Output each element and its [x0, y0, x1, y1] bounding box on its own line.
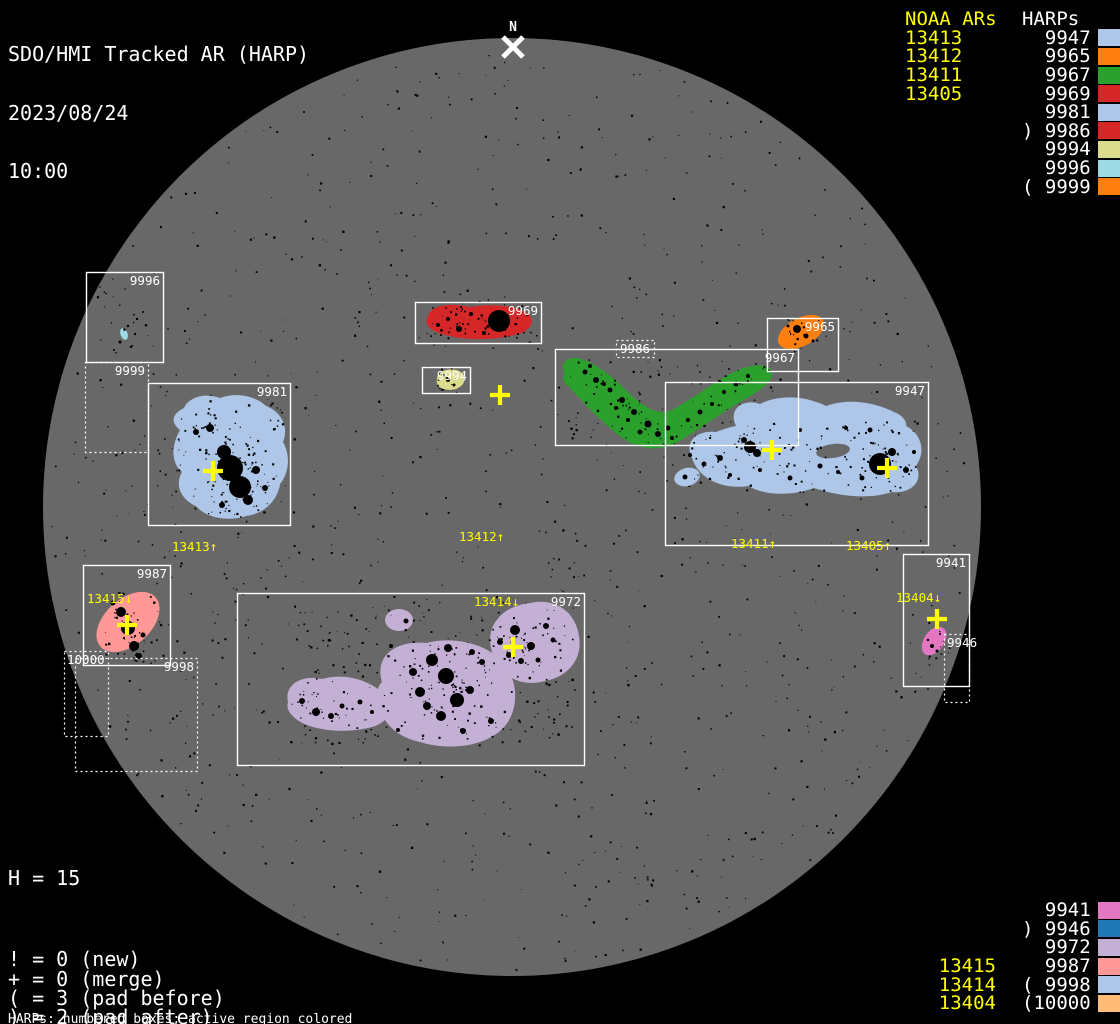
figure-title: SDO/HMI Tracked AR (HARP)	[8, 45, 309, 65]
harp-box-label-9965: 9965	[805, 319, 835, 334]
legend-row-9967: 13411 9967	[905, 66, 1120, 85]
noaa-label-13405: 13405↑	[846, 538, 891, 553]
legend-row-9969: 13405 9969	[905, 84, 1120, 103]
color-swatch-9967	[1098, 67, 1120, 84]
legend-top-rows: 13413 994713412 996513411 996713405 9969…	[905, 29, 1120, 196]
color-swatch-9998	[1098, 976, 1120, 993]
color-swatch-9965	[1098, 48, 1120, 65]
legend-bottom-rows: 9941) 9946 997213415 998713414( 99981340…	[905, 901, 1120, 1013]
noaa-label-13411: 13411↑	[731, 536, 776, 551]
legend-bottom: 9941) 9946 997213415 998713414( 99981340…	[905, 901, 1120, 1013]
footer-line-harps: HARPs: numbered boxes; active region col…	[8, 1014, 462, 1024]
color-swatch-9946	[1098, 920, 1120, 937]
harp-box-label-9972: 9972	[551, 594, 581, 609]
harp-box-label-9969: 9969	[508, 303, 538, 318]
legend-noaa-13405: 13405	[905, 83, 1022, 105]
title-block: SDO/HMI Tracked AR (HARP) 2023/08/24 10:…	[8, 6, 309, 221]
legend-top: NOAA ARs HARPs 13413 994713412 996513411…	[905, 10, 1120, 196]
legend-top-header-row: NOAA ARs HARPs	[905, 10, 1120, 29]
harp-box-label-9967: 9967	[765, 350, 795, 365]
color-swatch-9986	[1098, 122, 1120, 139]
color-swatch-9972	[1098, 939, 1120, 956]
noaa-label-13415: 13415↓	[87, 591, 132, 606]
harp-box-label-9981: 9981	[257, 384, 287, 399]
color-swatch-9994	[1098, 141, 1120, 158]
harp-box-label-9999: 9999	[115, 363, 145, 378]
legend-noaa-13404: 13404	[905, 992, 1022, 1014]
harp-count-line: H = 15	[8, 869, 237, 888]
harp-region-9981	[172, 395, 288, 519]
footer-notes: HARPs: numbered boxes; active region col…	[8, 990, 462, 1024]
color-swatch-9969	[1098, 85, 1120, 102]
legend-row-9998: 13414( 9998	[905, 975, 1120, 994]
legend-row-9987: 13415 9987	[905, 957, 1120, 976]
harp-tracking-figure: 9996999999819969999499869967996599479972…	[0, 0, 1120, 1024]
noaa-label-13412: 13412↑	[459, 529, 504, 544]
harp-box-label-9998: 9998	[164, 659, 194, 674]
legend-row-10000: 13404(10000	[905, 994, 1120, 1013]
color-swatch-9987	[1098, 958, 1120, 975]
color-swatch-9981	[1098, 104, 1120, 121]
legend-row-9946: ) 9946	[905, 920, 1120, 939]
legend-harp-10000: (10000	[1022, 992, 1090, 1014]
color-swatch-9947	[1098, 29, 1120, 46]
legend-harp-9999: ( 9999	[1022, 176, 1090, 198]
legend-row-9941: 9941	[905, 901, 1120, 920]
color-swatch-9941	[1098, 902, 1120, 919]
figure-date: 2023/08/24	[8, 104, 309, 124]
north-label: N	[509, 20, 517, 35]
harp-box-label-9986: 9986	[620, 341, 650, 356]
noaa-label-13413: 13413↑	[172, 539, 217, 554]
legend-row-9999: ( 9999	[905, 177, 1120, 196]
legend-row-9965: 13412 9965	[905, 47, 1120, 66]
legend-row-9972: 9972	[905, 938, 1120, 957]
legend-row-9947: 13413 9947	[905, 29, 1120, 48]
legend-row-9996: 9996	[905, 159, 1120, 178]
legend-row-9994: 9994	[905, 140, 1120, 159]
harp-box-label-9941: 9941	[936, 555, 966, 570]
harp-box-label-9996: 9996	[130, 273, 160, 288]
color-swatch-10000	[1098, 995, 1120, 1012]
harp-box-label-9947: 9947	[895, 383, 925, 398]
harp-box-label-9994: 9994	[437, 368, 467, 383]
harp-box-label-9987: 9987	[137, 566, 167, 581]
color-swatch-9999	[1098, 178, 1120, 195]
legend-row-9986: ) 9986	[905, 122, 1120, 141]
legend-row-9981: 9981	[905, 103, 1120, 122]
color-swatch-9996	[1098, 160, 1120, 177]
noaa-label-13414: 13414↓	[474, 594, 519, 609]
noaa-label-13404: 13404↓	[896, 590, 941, 605]
harp-box-label-10000: 10000	[67, 652, 105, 667]
figure-time: 10:00	[8, 162, 309, 182]
harp-box-label-9946: 9946	[947, 635, 977, 650]
